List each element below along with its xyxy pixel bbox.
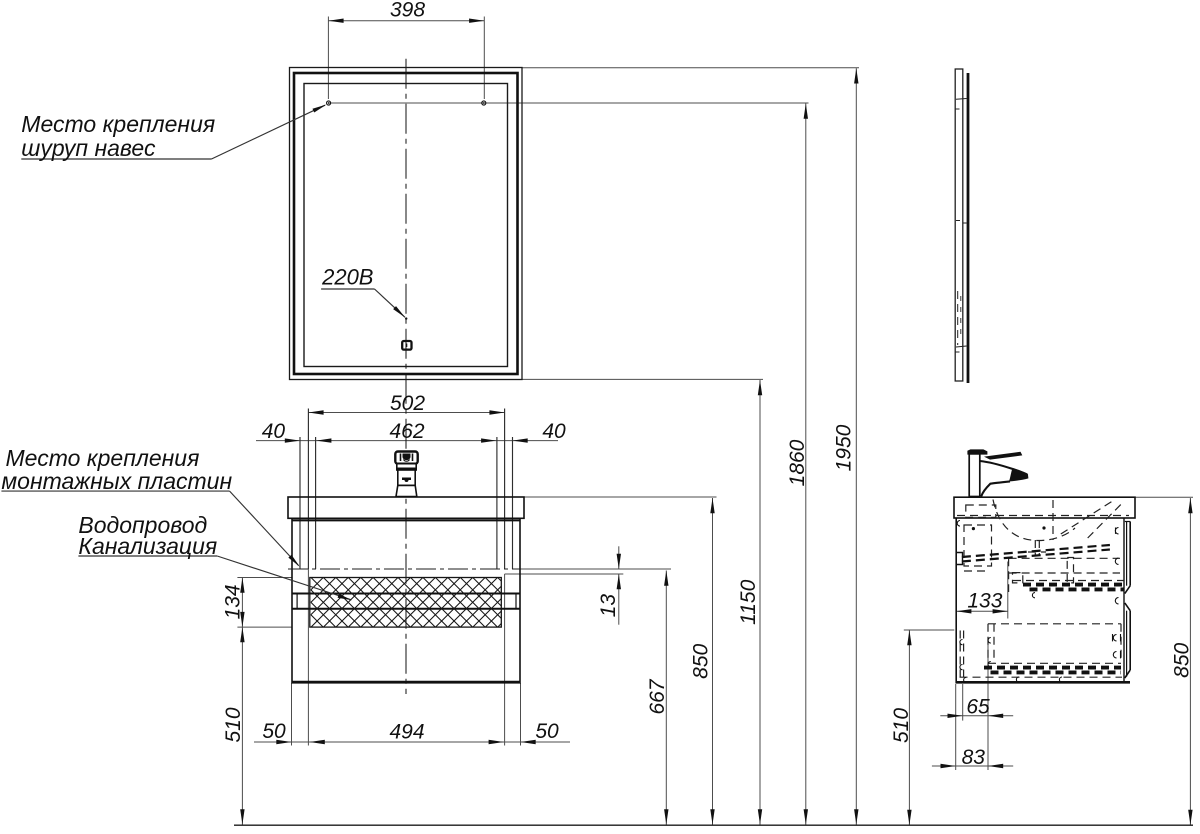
svg-text:134: 134 bbox=[221, 584, 244, 619]
svg-text:Место крепления: Место крепления bbox=[21, 111, 215, 137]
svg-text:65: 65 bbox=[966, 696, 990, 719]
svg-text:1150: 1150 bbox=[737, 579, 760, 624]
svg-text:494: 494 bbox=[389, 721, 424, 744]
svg-text:850: 850 bbox=[1171, 642, 1194, 677]
svg-text:40: 40 bbox=[542, 420, 566, 443]
svg-text:50: 50 bbox=[262, 720, 286, 743]
svg-text:50: 50 bbox=[535, 720, 559, 743]
svg-text:398: 398 bbox=[390, 0, 425, 22]
svg-text:шуруп навес: шуруп навес bbox=[21, 135, 156, 161]
svg-text:40: 40 bbox=[262, 420, 286, 443]
svg-text:510: 510 bbox=[222, 707, 245, 742]
svg-text:монтажных пластин: монтажных пластин bbox=[1, 468, 232, 494]
svg-text:Канализация: Канализация bbox=[78, 533, 217, 559]
svg-text:220В: 220В bbox=[321, 265, 373, 290]
svg-text:502: 502 bbox=[390, 392, 425, 415]
svg-text:667: 667 bbox=[646, 678, 669, 714]
svg-text:462: 462 bbox=[389, 420, 424, 443]
svg-text:1860: 1860 bbox=[786, 439, 809, 486]
svg-text:510: 510 bbox=[890, 708, 913, 743]
svg-text:1950: 1950 bbox=[832, 424, 855, 471]
svg-text:133: 133 bbox=[967, 589, 1002, 612]
svg-text:83: 83 bbox=[962, 746, 986, 769]
svg-text:850: 850 bbox=[690, 643, 713, 678]
svg-text:13: 13 bbox=[597, 594, 620, 618]
